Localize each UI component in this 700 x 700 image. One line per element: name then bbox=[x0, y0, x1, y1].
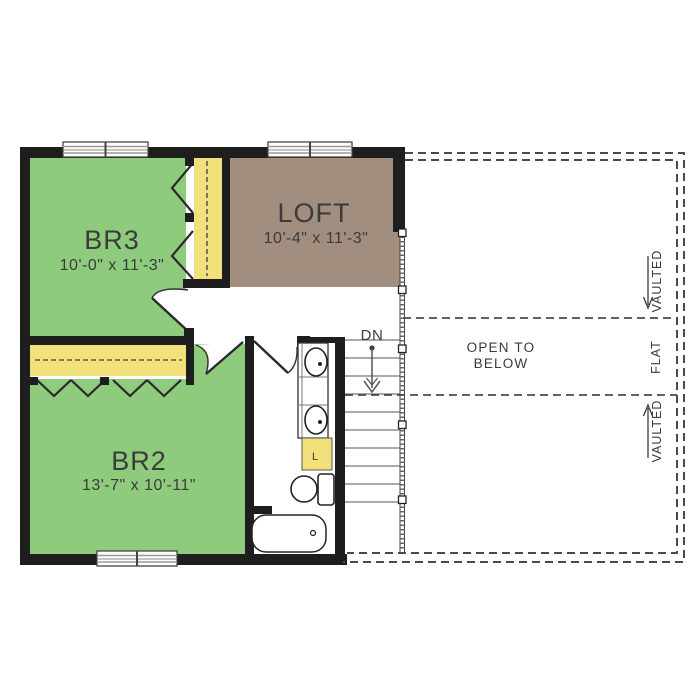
open-to-below-line1: OPEN TO bbox=[467, 340, 536, 355]
closet-br3-floor bbox=[194, 158, 222, 279]
floor-plan: L DN bbox=[0, 0, 700, 700]
room-loft-label: LOFT bbox=[277, 198, 350, 228]
door-bathroom bbox=[254, 341, 297, 373]
stairs-down-label: DN bbox=[361, 327, 384, 344]
window-br3 bbox=[63, 142, 148, 157]
window-br2 bbox=[97, 551, 177, 566]
room-br3-dims: 10'-0" x 11'-3" bbox=[60, 257, 165, 274]
ceiling-flat-label: FLAT bbox=[649, 340, 663, 374]
room-br2-label: BR2 bbox=[111, 446, 167, 476]
room-loft-dims: 10'-4" x 11'-3" bbox=[264, 230, 369, 247]
stairs-down-arrow bbox=[364, 345, 380, 392]
stair-railing bbox=[399, 229, 407, 553]
sink-icon bbox=[305, 406, 327, 434]
linen-closet: L bbox=[302, 438, 332, 470]
window-loft bbox=[268, 142, 352, 157]
vanity-double-sink bbox=[298, 343, 328, 438]
sink-icon bbox=[305, 348, 327, 376]
ceiling-vaulted-upper-label: VAULTED bbox=[650, 250, 664, 313]
ceiling-vaulted-lower-label: VAULTED bbox=[650, 400, 664, 463]
bathtub-icon bbox=[252, 515, 326, 552]
room-br3-label: BR3 bbox=[84, 225, 140, 255]
linen-label: L bbox=[312, 451, 318, 463]
room-br2-dims: 13'-7" x 10'-11" bbox=[82, 477, 196, 494]
open-to-below-line2: BELOW bbox=[474, 356, 529, 371]
toilet-icon bbox=[291, 474, 334, 505]
floor-plan-drawing: L DN bbox=[0, 0, 700, 700]
